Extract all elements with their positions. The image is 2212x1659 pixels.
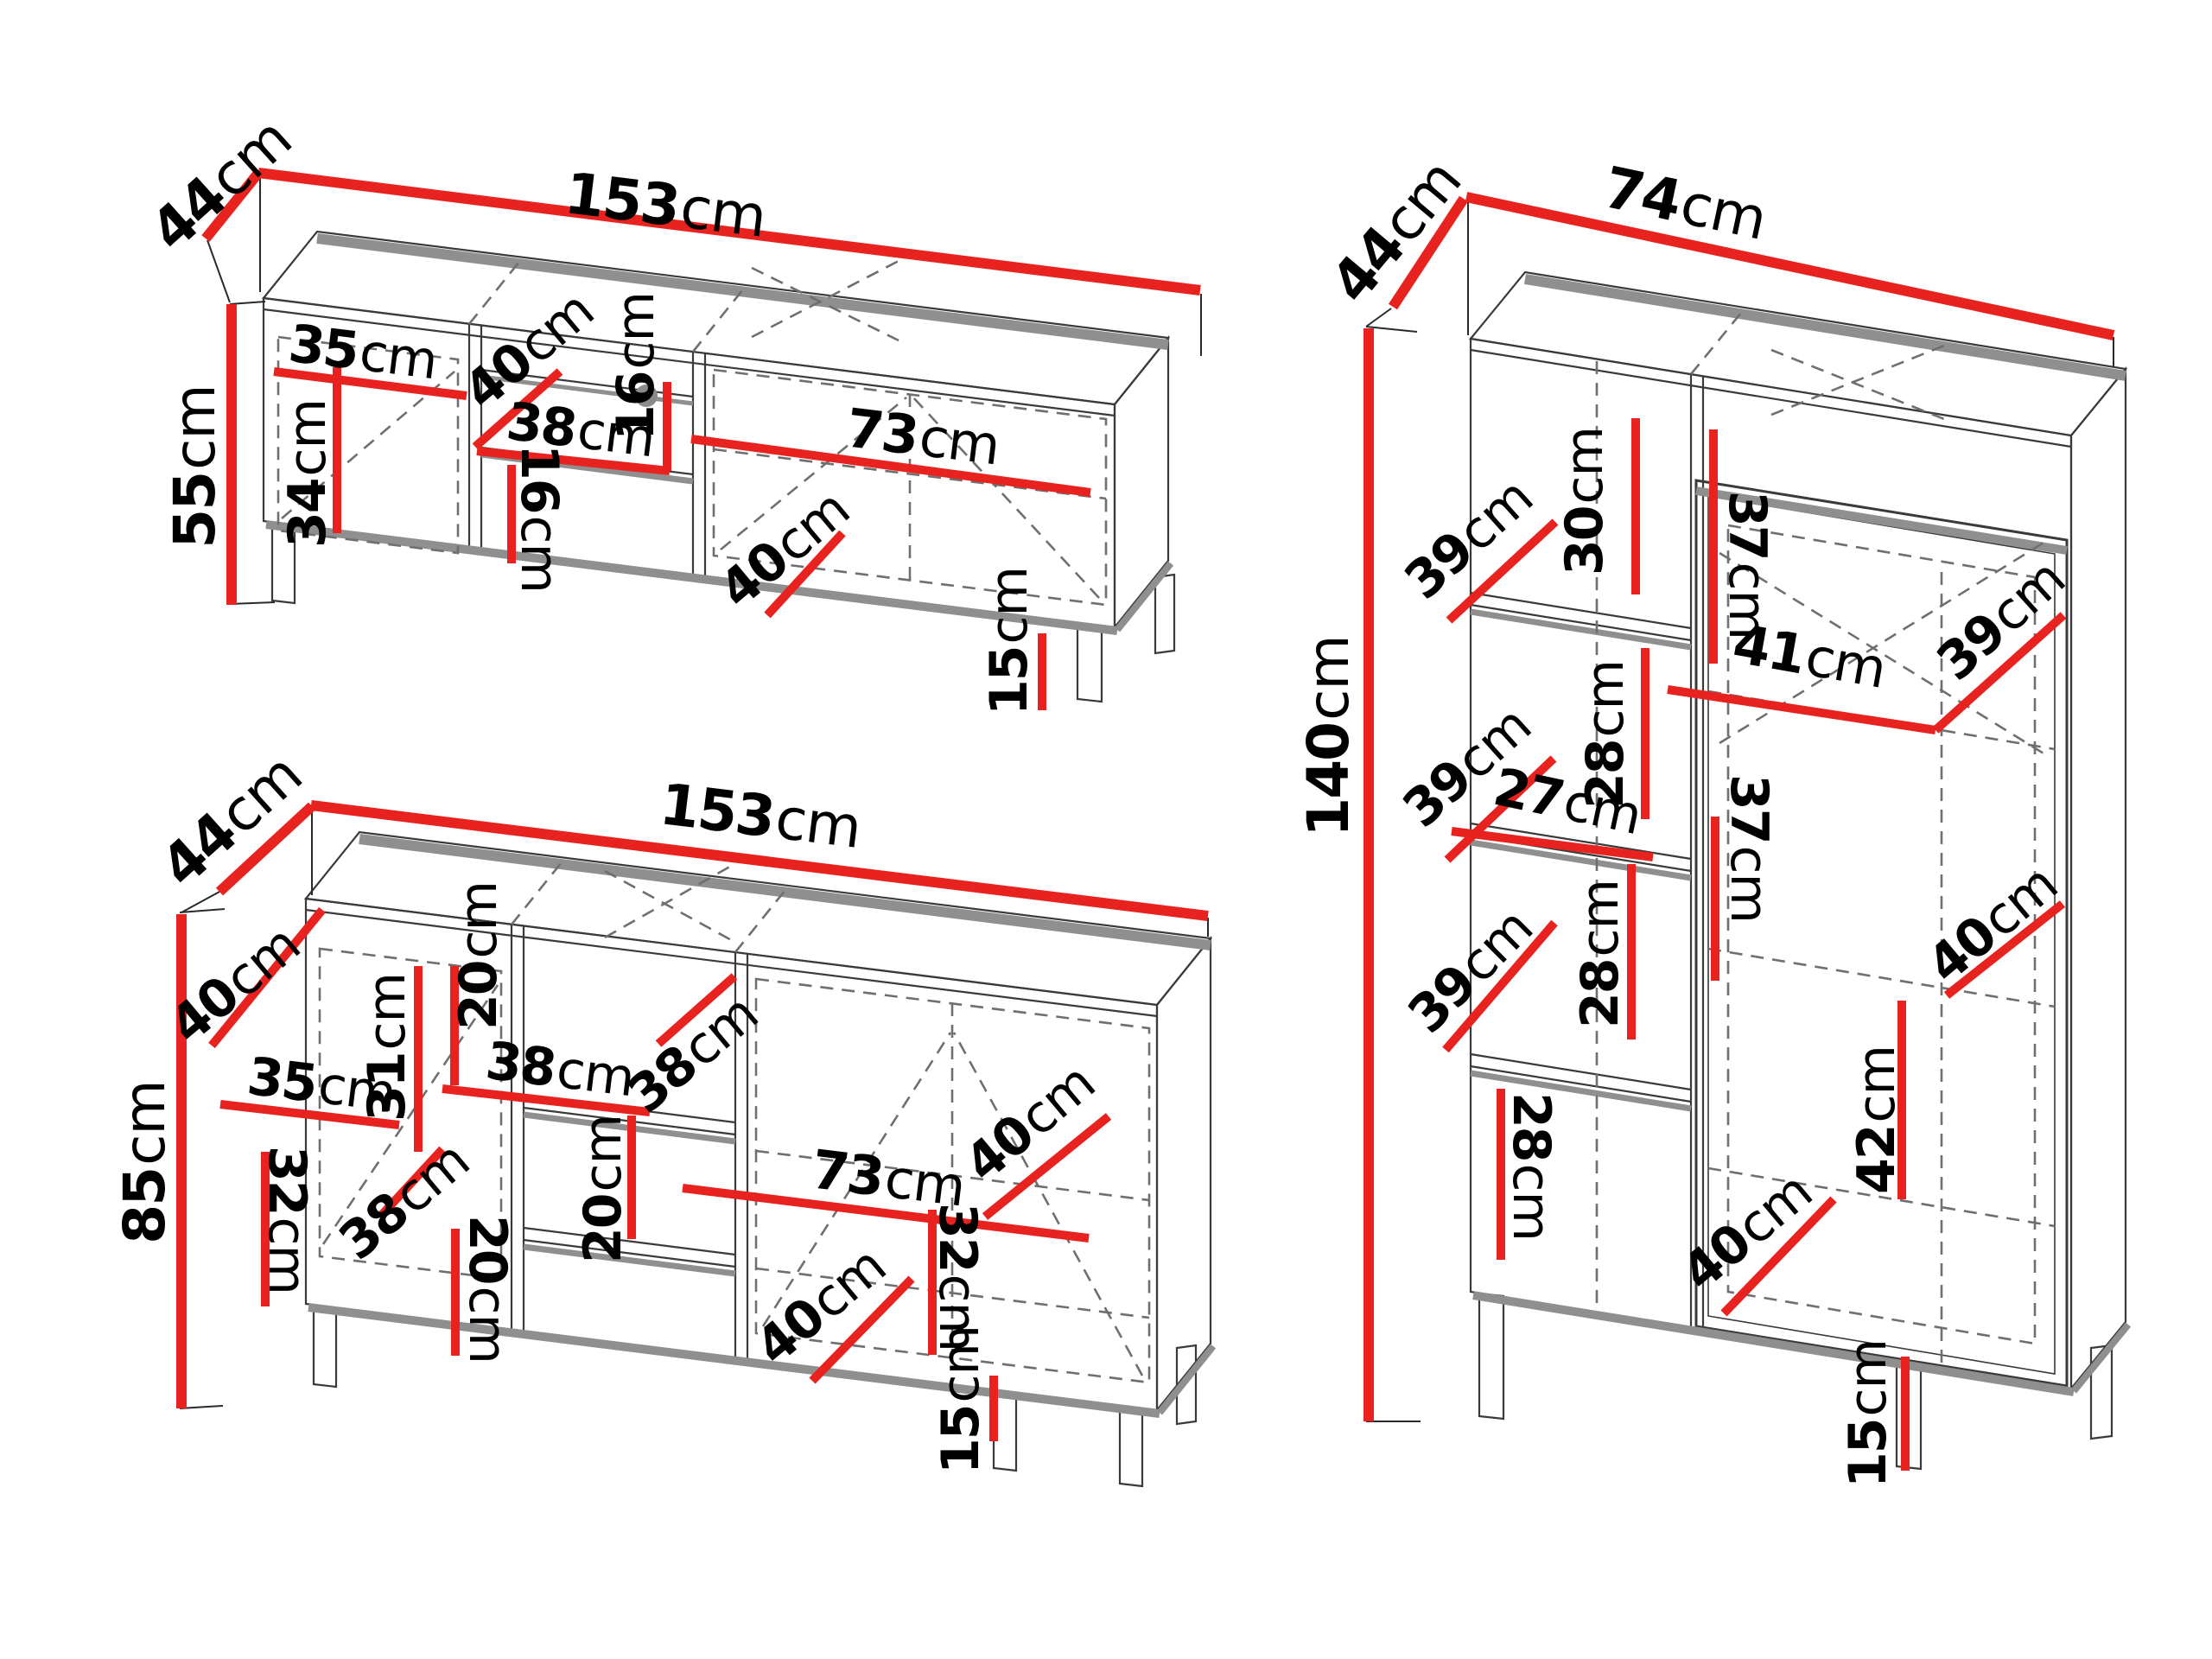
dimension-value: 140 bbox=[1295, 723, 1362, 837]
dimension-label-display-cabinet: 40cm bbox=[1919, 857, 2066, 992]
dimension-label-tv-stand: 44cm bbox=[142, 109, 302, 261]
dimension-label-tv-stand: 73cm bbox=[843, 401, 1002, 473]
dimension-label-sideboard: 20cm bbox=[577, 1115, 629, 1263]
dimension-unit: cm bbox=[111, 1080, 178, 1166]
dimension-label-sideboard: 31cm bbox=[361, 973, 413, 1122]
dimension-value: 20 bbox=[448, 961, 509, 1030]
dimension-label-sideboard: 32cm bbox=[261, 1146, 313, 1294]
dimension-unit: cm bbox=[277, 399, 338, 476]
dimension-unit: cm bbox=[162, 385, 228, 470]
dimension-label-sideboard: 15cm bbox=[935, 1325, 987, 1474]
dimension-value: 74 bbox=[1598, 154, 1686, 235]
dimension-label-display-cabinet: 74cm bbox=[1599, 159, 1770, 249]
dimension-label-display-cabinet: 39cm bbox=[1929, 551, 2074, 690]
dimension-unit: cm bbox=[573, 1115, 633, 1192]
dimension-label-display-cabinet: 15cm bbox=[1842, 1339, 1894, 1488]
dimension-label-sideboard: 40cm bbox=[747, 1239, 894, 1374]
dimension-unit: cm bbox=[357, 973, 417, 1050]
dimension-value: 85 bbox=[111, 1168, 178, 1244]
dimension-unit: cm bbox=[1838, 1339, 1898, 1416]
dimension-unit: cm bbox=[606, 292, 666, 369]
dimension-value: 32 bbox=[927, 1203, 988, 1272]
dimension-value: 34 bbox=[277, 479, 338, 548]
dimension-label-sideboard: 85cm bbox=[117, 1080, 174, 1243]
dimension-label-display-cabinet: 37cm bbox=[1723, 774, 1775, 923]
dimension-value: 31 bbox=[357, 1052, 417, 1122]
dimension-unit: cm bbox=[772, 785, 864, 861]
dimension-label-display-cabinet: 30cm bbox=[1559, 427, 1611, 575]
dimension-unit: cm bbox=[1675, 170, 1771, 253]
dimension-unit: cm bbox=[457, 1287, 518, 1363]
dimension-label-tv-stand: 16cm bbox=[610, 292, 662, 441]
dimension-unit: cm bbox=[1575, 660, 1636, 737]
dimension-label-display-cabinet: 41cm bbox=[1729, 617, 1890, 696]
dimension-value: 32 bbox=[257, 1146, 317, 1215]
dimension-value: 153 bbox=[562, 160, 683, 239]
dimension-label-display-cabinet: 28cm bbox=[1505, 1092, 1557, 1241]
dimension-value: 37 bbox=[1719, 774, 1779, 843]
dimension-value: 27 bbox=[1489, 757, 1568, 830]
dimension-label-tv-stand: 15cm bbox=[983, 567, 1035, 715]
dimension-label-tv-stand: 40cm bbox=[711, 482, 858, 617]
dimension-label-sideboard: 40cm bbox=[957, 1056, 1103, 1191]
dimension-value: 15 bbox=[931, 1405, 991, 1474]
dimension-label-sideboard: 38cm bbox=[331, 1134, 478, 1268]
dimension-unit: cm bbox=[677, 174, 769, 250]
dimension-label-sideboard: 20cm bbox=[453, 881, 505, 1030]
dimension-value: 20 bbox=[573, 1194, 633, 1263]
dimension-label-display-cabinet: 140cm bbox=[1300, 635, 1357, 836]
dimension-unit: cm bbox=[916, 405, 1003, 478]
dimension-value: 38 bbox=[482, 1031, 557, 1099]
dimension-label-tv-stand: 153cm bbox=[562, 165, 769, 246]
dimension-label-display-cabinet: 39cm bbox=[1400, 900, 1541, 1042]
dimension-unit: cm bbox=[1570, 880, 1630, 957]
dimension-label-sideboard: 38cm bbox=[620, 987, 766, 1122]
dimension-value: 30 bbox=[1554, 506, 1615, 575]
dimension-label-sideboard: 44cm bbox=[152, 745, 312, 897]
dimension-unit: cm bbox=[1847, 1046, 1907, 1122]
dimension-unit: cm bbox=[1801, 625, 1891, 701]
dimension-value: 20 bbox=[457, 1215, 518, 1284]
dimension-label-tv-stand: 16cm bbox=[513, 444, 565, 593]
dimension-value: 28 bbox=[1575, 740, 1636, 809]
dimension-unit: cm bbox=[931, 1325, 991, 1402]
dimension-label-display-cabinet: 40cm bbox=[1674, 1165, 1821, 1300]
dimension-label-sideboard: 153cm bbox=[657, 776, 864, 857]
dimension-label-tv-stand: 55cm bbox=[167, 385, 224, 548]
dimension-unit: cm bbox=[356, 322, 440, 391]
dimension-unit: cm bbox=[1501, 1164, 1561, 1241]
dimension-value: 16 bbox=[509, 444, 569, 513]
dimension-value: 15 bbox=[979, 646, 1039, 715]
dimension-unit: cm bbox=[448, 881, 509, 958]
dimension-unit: cm bbox=[509, 516, 569, 593]
dimension-label-display-cabinet: 42cm bbox=[1851, 1046, 1903, 1194]
dimension-value: 28 bbox=[1501, 1092, 1561, 1161]
dimension-value: 16 bbox=[606, 372, 666, 441]
dimension-value: 42 bbox=[1847, 1125, 1907, 1194]
dimension-unit: cm bbox=[979, 567, 1039, 644]
dimension-value: 153 bbox=[657, 771, 778, 850]
dimension-value: 55 bbox=[162, 473, 228, 549]
dimension-label-sideboard: 40cm bbox=[162, 918, 308, 1052]
dimension-label-display-cabinet: 44cm bbox=[1322, 150, 1471, 313]
dimension-unit: cm bbox=[1295, 635, 1362, 721]
dimension-value: 41 bbox=[1728, 612, 1809, 686]
dimension-label-tv-stand: 34cm bbox=[282, 399, 334, 548]
dimension-unit: cm bbox=[1719, 846, 1779, 923]
dimension-label-display-cabinet: 39cm bbox=[1396, 470, 1541, 608]
dimension-label-tv-stand: 35cm bbox=[286, 318, 440, 388]
dimension-unit: cm bbox=[1554, 427, 1615, 504]
furniture-dimension-diagram: 44cm153cm55cm35cm34cm40cm38cm16cm16cm73c… bbox=[0, 0, 2212, 1659]
dimension-value: 73 bbox=[842, 396, 921, 467]
dimension-label-sideboard: 20cm bbox=[461, 1215, 513, 1363]
labels-layer: 44cm153cm55cm35cm34cm40cm38cm16cm16cm73c… bbox=[0, 0, 2212, 1659]
dimension-label-display-cabinet: 28cm bbox=[1580, 660, 1631, 809]
dimension-value: 73 bbox=[808, 1137, 887, 1208]
dimension-value: 15 bbox=[1838, 1419, 1898, 1488]
dimension-value: 35 bbox=[285, 314, 360, 382]
dimension-value: 28 bbox=[1570, 959, 1630, 1028]
dimension-label-display-cabinet: 28cm bbox=[1574, 880, 1626, 1028]
dimension-value: 37 bbox=[1717, 491, 1777, 560]
dimension-unit: cm bbox=[257, 1217, 317, 1294]
dimension-label-sideboard: 38cm bbox=[483, 1035, 637, 1105]
dimension-value: 35 bbox=[244, 1046, 319, 1115]
